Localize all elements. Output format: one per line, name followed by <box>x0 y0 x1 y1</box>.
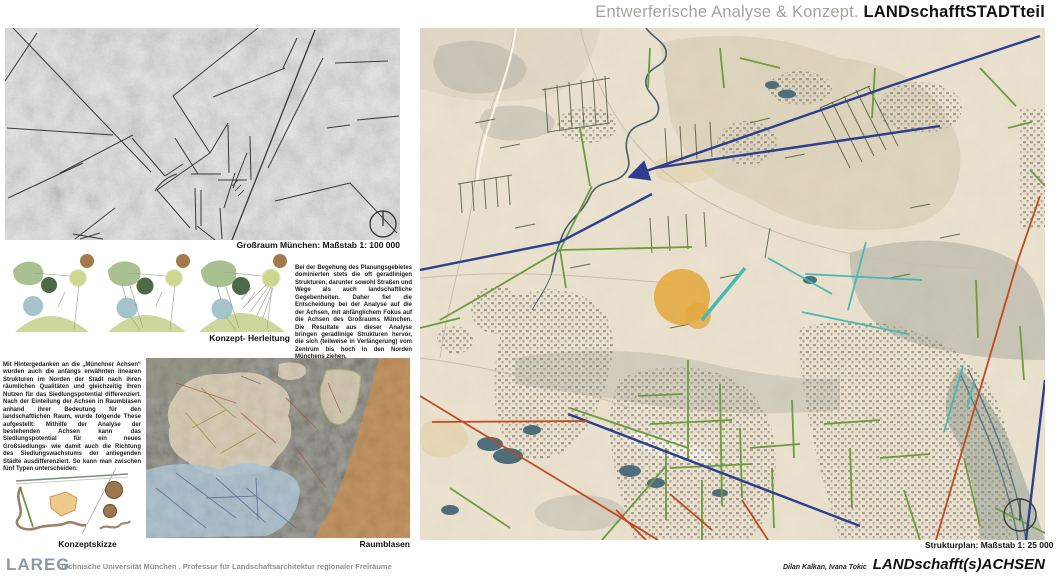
page-title: Entwerferische Analyse & Konzept. LANDsc… <box>595 3 1045 22</box>
analysis-paragraph: Bei der Begehung des Planungsgebietes do… <box>295 265 412 362</box>
aerial-photo-texture <box>5 28 400 240</box>
poster-board: Entwerferische Analyse & Konzept. LANDsc… <box>0 0 1063 587</box>
grossraum-map <box>5 28 400 240</box>
credits: Dilan Kalkan, Ivana TokicLANDschafft(s)A… <box>783 556 1045 574</box>
page-title-bold: LANDschafftSTADTteil <box>863 3 1045 21</box>
grossraum-caption: Großraum München: Maßstab 1: 100 000 <box>237 240 400 250</box>
sketch-lines <box>16 468 130 534</box>
institution-text: Technische Universität München . Profess… <box>60 562 392 571</box>
grossraum-map-figure <box>5 28 400 240</box>
concept-paragraph: Mit Hintergedanken an die „Münchner Achs… <box>3 362 141 474</box>
strukturplan-caption: Strukturplan: Maßstab 1: 25 000 <box>925 540 1045 550</box>
raumblasen-texture-overlay <box>146 358 410 538</box>
page-title-light: Entwerferische Analyse & Konzept. <box>595 3 863 21</box>
herleitung-caption: Konzept- Herleitung <box>170 333 290 343</box>
strukturplan-figure <box>420 28 1045 540</box>
raumblasen-map <box>146 358 410 538</box>
strukturplan-map <box>420 28 1045 540</box>
konzeptskizze-figure <box>8 465 136 537</box>
authors-text: Dilan Kalkan, Ivana Tokic <box>783 564 867 571</box>
konzept-herleitung-sketches <box>5 252 290 337</box>
herleitung-panel-2 <box>108 254 190 332</box>
herleitung-panel-1 <box>13 254 94 332</box>
konzeptskizze-sketch <box>8 465 136 537</box>
konzeptskizze-caption: Konzeptskizze <box>40 539 135 549</box>
herleitung-panel-3 <box>199 254 287 332</box>
raumblasen-caption: Raumblasen <box>290 539 410 549</box>
raumblasen-figure <box>146 358 410 538</box>
project-title: LANDschafft(s)ACHSEN <box>873 556 1045 573</box>
konzept-herleitung-figure <box>5 252 290 337</box>
